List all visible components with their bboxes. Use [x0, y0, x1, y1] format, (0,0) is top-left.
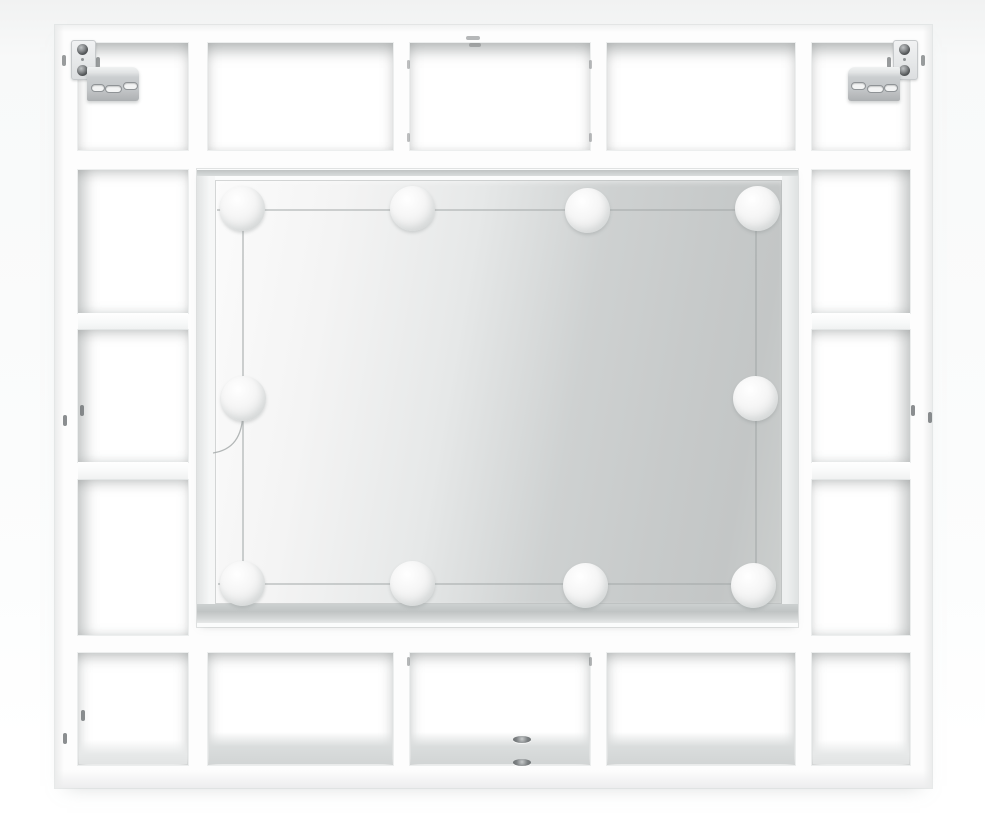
shelf-pin-hole — [589, 60, 592, 69]
shelf-pin-hole — [407, 60, 410, 69]
shelf-pin-hole — [63, 415, 67, 426]
shelf-pin-hole — [407, 133, 410, 142]
shelf-pin-hole — [469, 43, 481, 47]
shelf-pin-hole — [407, 657, 410, 666]
cable-hole — [513, 736, 531, 743]
shelf-pin-hole — [589, 657, 592, 666]
shelf-pin-hole — [80, 405, 84, 416]
shelf-pin-hole — [911, 405, 915, 416]
shelf-pin-hole — [63, 733, 67, 744]
shelf-pin-hole — [589, 133, 592, 142]
shelf-pin-hole — [466, 36, 480, 40]
shelf-pin-hole — [81, 710, 85, 721]
shelf-pin-hole — [928, 412, 932, 423]
cable-hole — [513, 759, 531, 766]
product-photo-stage — [0, 0, 985, 826]
pin-hole-layer — [0, 0, 985, 826]
